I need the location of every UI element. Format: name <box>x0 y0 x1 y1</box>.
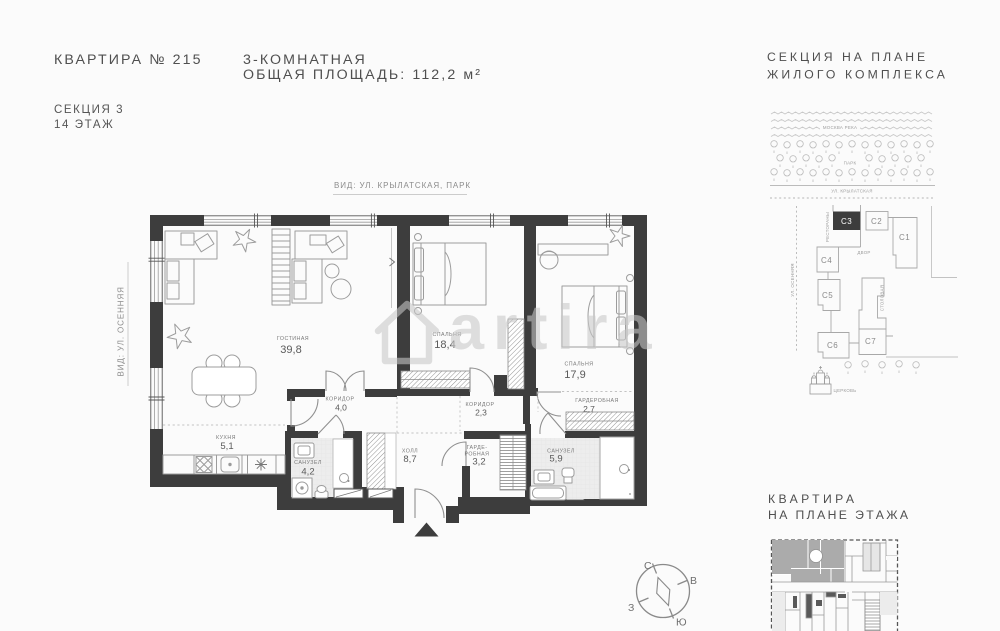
svg-text:САНУЗЕЛ: САНУЗЕЛ <box>294 460 322 466</box>
svg-text:39,8: 39,8 <box>280 344 301 356</box>
svg-text:ОБЩАЯ ПЛОЩАДЬ: 112,2 м²: ОБЩАЯ ПЛОЩАДЬ: 112,2 м² <box>243 67 482 83</box>
svg-text:ГАРДЕ-: ГАРДЕ- <box>467 445 488 451</box>
svg-text:5,9: 5,9 <box>549 454 562 465</box>
svg-text:ЖИЛОГО КОМПЛЕКСА: ЖИЛОГО КОМПЛЕКСА <box>767 68 948 82</box>
svg-text:С1: С1 <box>899 233 910 242</box>
svg-text:ВИД: УЛ. КРЫЛАТСКАЯ, ПАРК: ВИД: УЛ. КРЫЛАТСКАЯ, ПАРК <box>334 181 471 190</box>
svg-text:ДВОР: ДВОР <box>857 250 870 255</box>
svg-text:УЛ. КРЫЛАТСКАЯ: УЛ. КРЫЛАТСКАЯ <box>831 189 873 194</box>
svg-text:ГАРДЕРОБНАЯ: ГАРДЕРОБНАЯ <box>575 398 619 404</box>
svg-text:НА ПЛАНЕ ЭТАЖА: НА ПЛАНЕ ЭТАЖА <box>768 508 910 522</box>
svg-text:СЕКЦИЯ 3: СЕКЦИЯ 3 <box>54 104 124 116</box>
svg-text:8,7: 8,7 <box>403 454 416 465</box>
svg-text:3-КОМНАТНАЯ: 3-КОМНАТНАЯ <box>243 52 367 68</box>
svg-text:УЛ. ОСЕННЯЯ: УЛ. ОСЕННЯЯ <box>790 263 795 296</box>
svg-text:ЦЕРКОВЬ: ЦЕРКОВЬ <box>834 388 857 393</box>
svg-text:РЕСТОРАНЫ: РЕСТОРАНЫ <box>825 212 830 242</box>
svg-text:5,1: 5,1 <box>220 441 233 452</box>
svg-text:17,9: 17,9 <box>564 369 585 381</box>
svg-text:artira: artira <box>449 293 661 363</box>
svg-text:С6: С6 <box>827 341 838 350</box>
svg-text:КВАРТИРА: КВАРТИРА <box>768 492 857 506</box>
svg-text:ПАРК: ПАРК <box>844 161 857 166</box>
svg-text:С7: С7 <box>865 337 876 346</box>
svg-text:2,7: 2,7 <box>583 404 595 414</box>
svg-text:14 ЭТАЖ: 14 ЭТАЖ <box>54 119 114 131</box>
svg-text:ГОСТИНАЯ: ГОСТИНАЯ <box>277 336 309 342</box>
svg-text:С2: С2 <box>871 217 882 226</box>
svg-text:КВАРТИРА № 215: КВАРТИРА № 215 <box>54 52 203 68</box>
svg-text:2,3: 2,3 <box>475 408 487 418</box>
svg-text:З: З <box>628 602 634 614</box>
svg-text:4,0: 4,0 <box>335 403 347 413</box>
svg-text:ВИД: УЛ. ОСЕННЯЯ: ВИД: УЛ. ОСЕННЯЯ <box>117 286 126 376</box>
svg-text:СТОЛОВАЯ: СТОЛОВАЯ <box>880 285 885 311</box>
svg-text:СЕКЦИЯ НА ПЛАНЕ: СЕКЦИЯ НА ПЛАНЕ <box>767 50 928 64</box>
svg-text:В: В <box>690 575 697 587</box>
svg-text:С4: С4 <box>821 256 832 265</box>
svg-text:Ю: Ю <box>676 617 687 629</box>
svg-text:С: С <box>644 560 652 572</box>
svg-text:МОСКВА РЕКА: МОСКВА РЕКА <box>823 125 857 130</box>
svg-text:3,2: 3,2 <box>472 457 485 468</box>
svg-text:С3: С3 <box>841 217 852 226</box>
svg-text:С5: С5 <box>822 291 833 300</box>
svg-text:4,2: 4,2 <box>301 467 314 478</box>
